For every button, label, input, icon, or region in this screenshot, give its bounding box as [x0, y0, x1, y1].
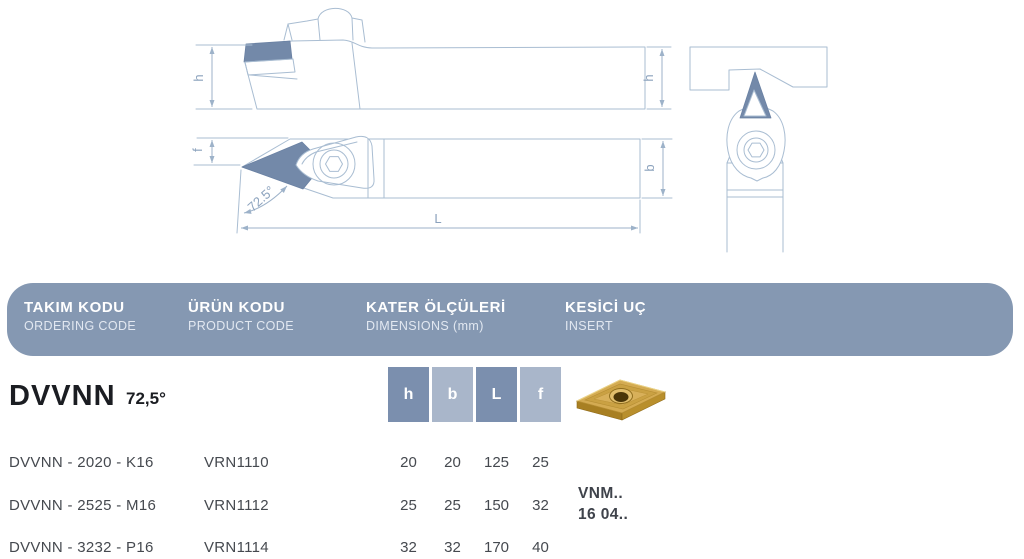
- dim-b: 32: [432, 539, 473, 556]
- dim-header-b: b: [432, 367, 473, 422]
- dim-h: 25: [388, 497, 429, 514]
- dim-label-h-left: h: [191, 74, 206, 81]
- header-col-ordering-code: TAKIM KODU ORDERING CODE: [24, 299, 136, 333]
- dim-L: 150: [476, 497, 517, 514]
- dim-L: 170: [476, 539, 517, 556]
- ordering-code: DVVNN - 2525 - M16: [9, 497, 194, 514]
- dim-h: 32: [388, 539, 429, 556]
- dim-b: 25: [432, 497, 473, 514]
- dim-label-b: b: [642, 164, 657, 171]
- header-col-insert: KESİCİ UÇ INSERT: [565, 299, 646, 333]
- dim-f: 40: [520, 539, 561, 556]
- header-subtitle: PRODUCT CODE: [188, 319, 294, 333]
- product-code: VRN1112: [204, 497, 324, 514]
- front-view-drawing: [690, 47, 827, 252]
- dim-label-f: f: [190, 148, 205, 152]
- side-view-drawing: h h: [191, 8, 671, 109]
- header-title: KATER ÖLÇÜLERİ: [366, 299, 506, 316]
- series-angle: 72,5°: [126, 389, 166, 409]
- series-code: DVVNN: [9, 380, 116, 413]
- dim-label-h-right: h: [641, 74, 656, 81]
- dim-h: 20: [388, 454, 429, 471]
- header-col-dimensions: KATER ÖLÇÜLERİ DIMENSIONS (mm): [366, 299, 506, 333]
- header-title: KESİCİ UÇ: [565, 299, 646, 316]
- header-subtitle: DIMENSIONS (mm): [366, 319, 506, 333]
- product-code: VRN1110: [204, 454, 324, 471]
- ordering-code: DVVNN - 3232 - P16: [9, 539, 194, 556]
- dim-header-f: f: [520, 367, 561, 422]
- dim-label-L: L: [434, 211, 441, 226]
- dim-f: 32: [520, 497, 561, 514]
- dim-L: 125: [476, 454, 517, 471]
- technical-drawings: h h f b: [0, 0, 1024, 280]
- header-subtitle: ORDERING CODE: [24, 319, 136, 333]
- table-row: DVVNN - 2020 - K16 VRN1110 20 20 125 25: [0, 454, 1024, 472]
- table-header-bar: TAKIM KODU ORDERING CODE ÜRÜN KODU PRODU…: [7, 283, 1013, 356]
- dim-header-L: L: [476, 367, 517, 422]
- table-row: DVVNN - 3232 - P16 VRN1114 32 32 170 40: [0, 539, 1024, 557]
- catalog-page: h h f b: [0, 0, 1024, 559]
- insert-photo: [570, 372, 672, 428]
- dimension-header-boxes: h b L f: [388, 367, 561, 422]
- table-row: DVVNN - 2525 - M16 VRN1112 25 25 150 32: [0, 497, 1024, 515]
- ordering-code: DVVNN - 2020 - K16: [9, 454, 194, 471]
- product-code: VRN1114: [204, 539, 324, 556]
- dim-f: 25: [520, 454, 561, 471]
- header-title: ÜRÜN KODU: [188, 299, 294, 316]
- header-subtitle: INSERT: [565, 319, 646, 333]
- header-title: TAKIM KODU: [24, 299, 136, 316]
- dim-header-h: h: [388, 367, 429, 422]
- top-view-drawing: f b L 72.5°: [190, 136, 672, 233]
- dim-b: 20: [432, 454, 473, 471]
- header-col-product-code: ÜRÜN KODU PRODUCT CODE: [188, 299, 294, 333]
